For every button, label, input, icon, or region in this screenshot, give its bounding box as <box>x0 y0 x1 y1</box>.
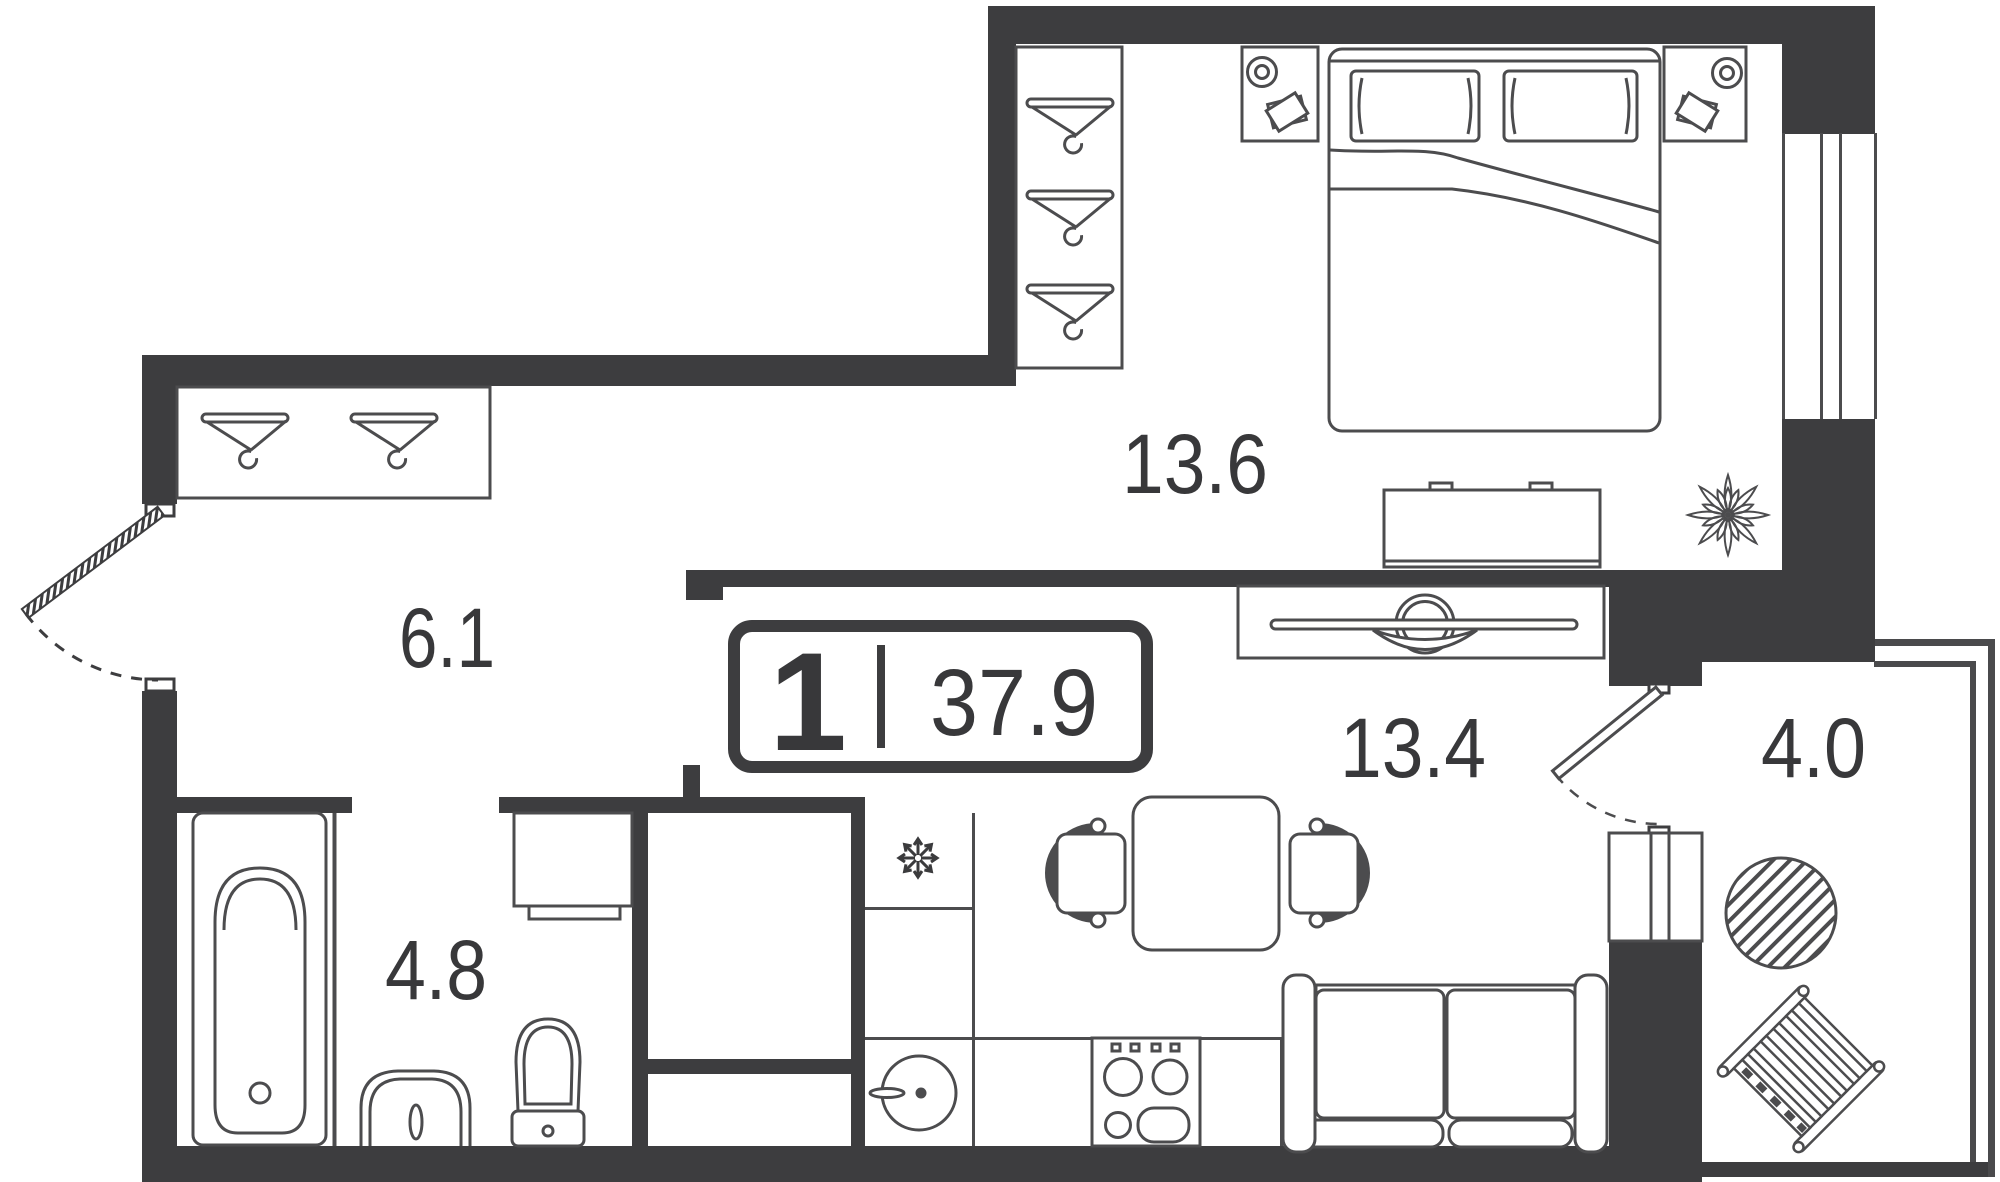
svg-text:13.6: 13.6 <box>1122 417 1268 511</box>
svg-text:1: 1 <box>769 623 847 780</box>
svg-text:6.1: 6.1 <box>399 591 495 685</box>
svg-text:4.8: 4.8 <box>385 923 487 1017</box>
svg-text:13.4: 13.4 <box>1340 701 1486 795</box>
svg-text:37.9: 37.9 <box>930 650 1098 756</box>
svg-text:4.0: 4.0 <box>1761 701 1866 795</box>
